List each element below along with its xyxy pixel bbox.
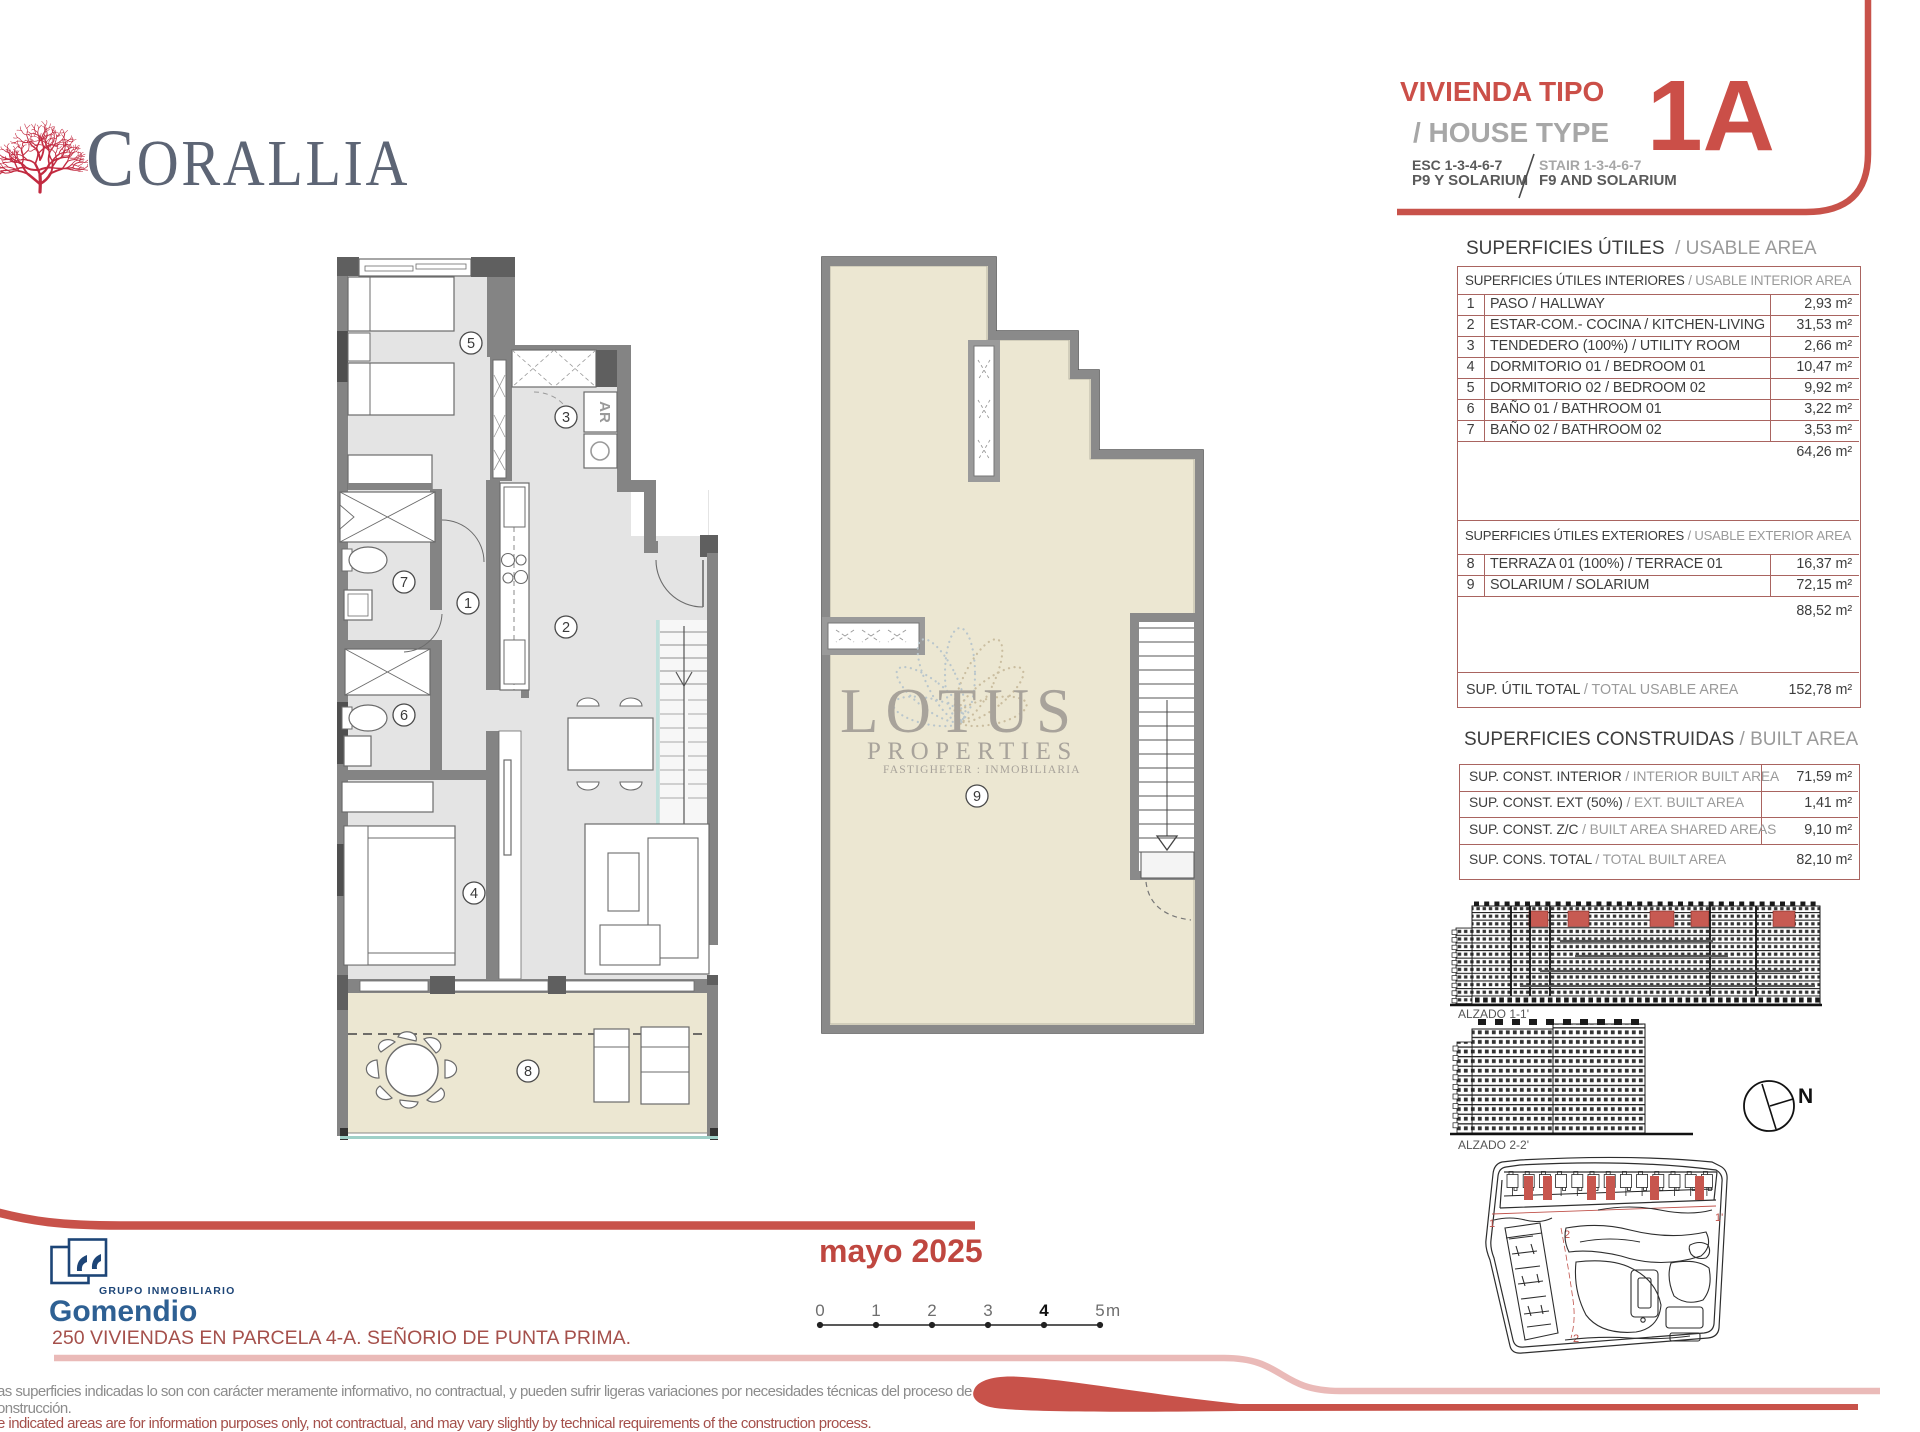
svg-text:8: 8 xyxy=(524,1064,532,1080)
svg-text:1: 1 xyxy=(871,1301,880,1320)
svg-text:AR: AR xyxy=(596,401,613,423)
svg-text:N: N xyxy=(1798,1085,1813,1108)
svg-text:1: 1 xyxy=(464,596,472,612)
svg-text:5: 5 xyxy=(1095,1301,1104,1320)
svg-text:4: 4 xyxy=(1039,1301,1049,1320)
svg-text:ALZADO 1-1': ALZADO 1-1' xyxy=(1458,1007,1529,1021)
svg-text:LOTUS: LOTUS xyxy=(840,676,1078,746)
svg-text:4: 4 xyxy=(470,886,478,902)
svg-text:PROPERTIES: PROPERTIES xyxy=(867,738,1078,765)
svg-text:0: 0 xyxy=(815,1301,824,1320)
svg-text:2: 2 xyxy=(562,620,570,636)
svg-text:3: 3 xyxy=(562,410,570,426)
svg-text:6: 6 xyxy=(400,708,408,724)
svg-text:2: 2 xyxy=(927,1301,936,1320)
svg-text:3: 3 xyxy=(983,1301,992,1320)
svg-text:9: 9 xyxy=(973,789,981,805)
svg-text:m: m xyxy=(1106,1301,1120,1320)
svg-text:FASTIGHETER : INMOBILIARIA: FASTIGHETER : INMOBILIARIA xyxy=(883,764,1081,776)
svg-text:5: 5 xyxy=(467,336,475,352)
svg-text:7: 7 xyxy=(400,575,408,591)
svg-text:1': 1' xyxy=(1715,1212,1723,1224)
